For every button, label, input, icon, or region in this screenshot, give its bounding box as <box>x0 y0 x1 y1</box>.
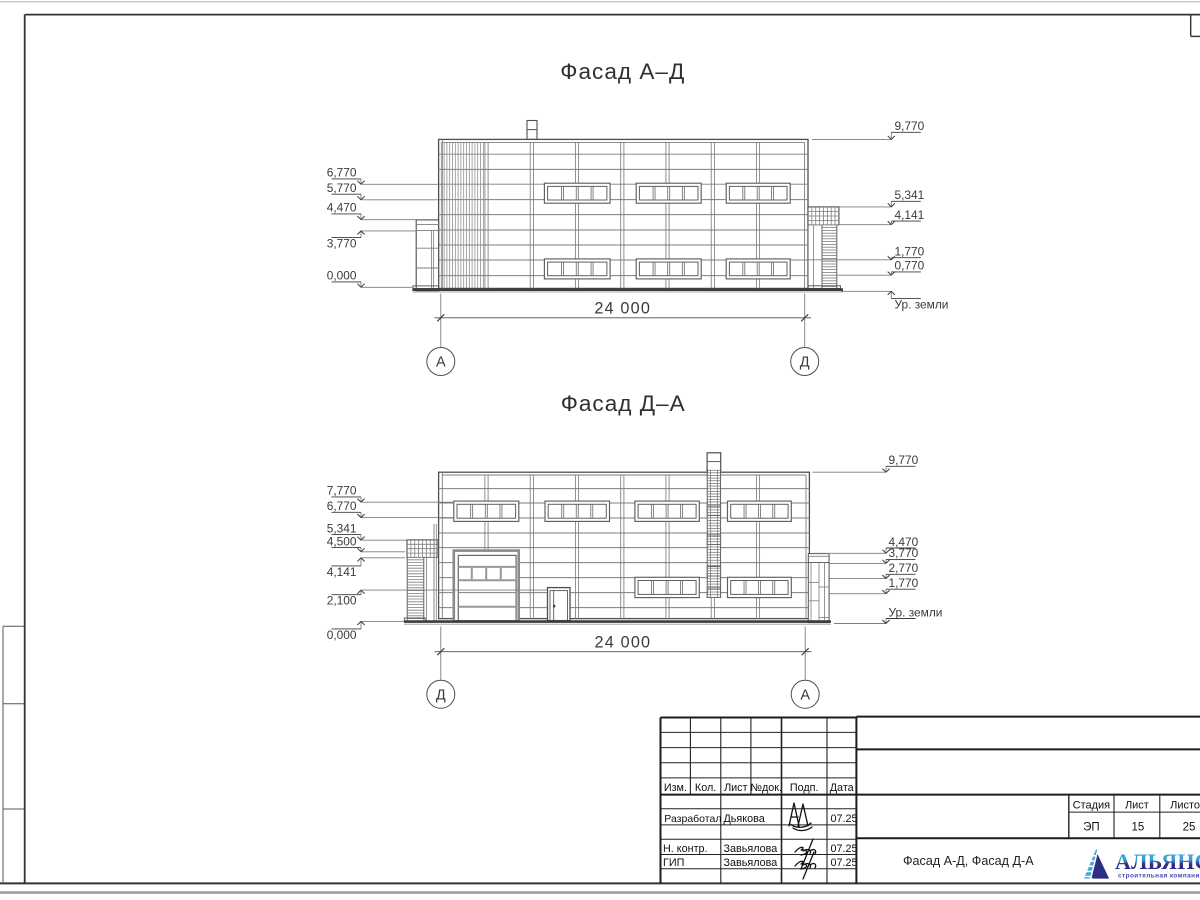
svg-text:А: А <box>800 688 810 704</box>
svg-text:Ур. земли: Ур. земли <box>889 605 943 619</box>
svg-text:ЭП: ЭП <box>1083 822 1100 834</box>
svg-text:Ур. земли: Ур. земли <box>895 297 949 311</box>
svg-text:5,341: 5,341 <box>895 188 925 202</box>
svg-text:9,770: 9,770 <box>889 453 919 467</box>
svg-text:6,770: 6,770 <box>327 499 357 513</box>
svg-text:Завьялова: Завьялова <box>724 843 778 855</box>
svg-text:Подп.: Подп. <box>790 782 819 794</box>
svg-text:3,770: 3,770 <box>889 546 919 560</box>
svg-text:07.25: 07.25 <box>831 843 858 855</box>
svg-text:6,770: 6,770 <box>327 166 357 180</box>
svg-text:Лист: Лист <box>1125 800 1149 812</box>
svg-text:07.25: 07.25 <box>831 857 858 869</box>
svg-text:7,770: 7,770 <box>327 484 357 498</box>
svg-text:15: 15 <box>1132 822 1145 834</box>
svg-text:Дьякова: Дьякова <box>724 813 765 825</box>
svg-text:4,470: 4,470 <box>327 201 357 215</box>
svg-text:4,500: 4,500 <box>327 534 357 548</box>
svg-text:3,770: 3,770 <box>327 237 357 251</box>
svg-text:Дата: Дата <box>830 782 854 794</box>
svg-text:Стадия: Стадия <box>1073 800 1111 812</box>
svg-text:25: 25 <box>1183 822 1196 834</box>
svg-text:А: А <box>436 355 446 371</box>
svg-text:ГИП: ГИП <box>663 857 684 869</box>
svg-text:07.25: 07.25 <box>831 813 858 825</box>
svg-text:Кол.: Кол. <box>695 782 716 794</box>
svg-text:5,770: 5,770 <box>327 181 357 195</box>
svg-text:Фасад Д–А: Фасад Д–А <box>561 391 686 416</box>
svg-text:Разработал: Разработал <box>664 813 721 825</box>
svg-text:Фасад А-Д, Фасад Д-А: Фасад А-Д, Фасад Д-А <box>903 854 1034 868</box>
svg-text:2,100: 2,100 <box>327 594 357 608</box>
svg-text:АЛЬЯНС: АЛЬЯНС <box>1115 849 1200 874</box>
svg-text:2,770: 2,770 <box>889 561 919 575</box>
svg-text:Д: Д <box>436 688 446 704</box>
svg-text:24 000: 24 000 <box>595 633 652 651</box>
svg-text:0,000: 0,000 <box>327 628 357 642</box>
svg-text:1,770: 1,770 <box>895 245 925 259</box>
svg-text:Н. контр.: Н. контр. <box>663 843 708 855</box>
svg-text:0,770: 0,770 <box>895 259 925 273</box>
svg-text:Изм.: Изм. <box>664 782 687 794</box>
svg-text:Завьялова: Завьялова <box>724 857 778 869</box>
svg-text:1,770: 1,770 <box>889 576 919 590</box>
svg-text:0,000: 0,000 <box>327 269 357 283</box>
svg-text:9,770: 9,770 <box>895 119 925 133</box>
svg-text:4,141: 4,141 <box>895 208 925 222</box>
svg-text:Д: Д <box>800 355 810 371</box>
svg-text:24 000: 24 000 <box>594 299 651 317</box>
svg-text:5,341: 5,341 <box>327 521 357 535</box>
svg-text:Фасад А–Д: Фасад А–Д <box>560 59 685 84</box>
svg-text:4,141: 4,141 <box>327 565 357 579</box>
svg-text:Листов: Листов <box>1170 800 1200 812</box>
svg-text:Лист: Лист <box>724 782 748 794</box>
svg-text:строительная компания: строительная компания <box>1118 872 1200 879</box>
svg-text:№док.: №док. <box>750 782 782 794</box>
